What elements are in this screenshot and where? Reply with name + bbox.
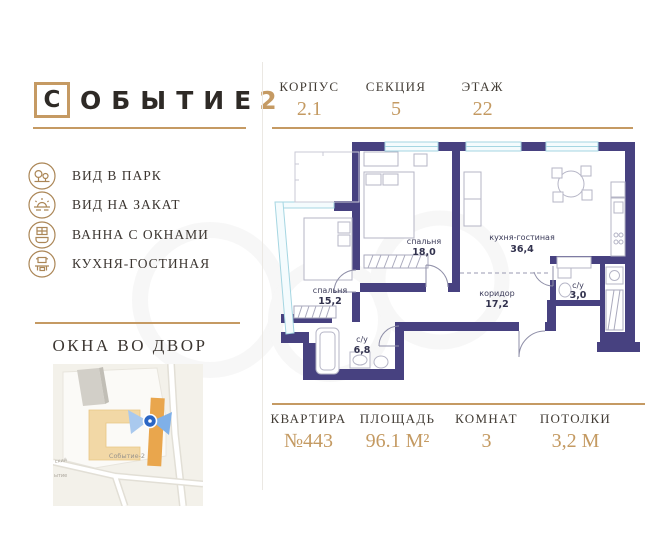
map-building-label: Событие-2 bbox=[109, 452, 145, 460]
room-name: спальня bbox=[407, 237, 442, 246]
stat-korpus: КОРПУС 2.1 bbox=[266, 79, 353, 121]
feature-label: ВИД В ПАРК bbox=[72, 168, 162, 184]
feature-sunset-view: ВИД НА ЗАКАТ bbox=[28, 191, 210, 221]
stat-value: №443 bbox=[264, 430, 353, 453]
stat-value: 2.1 bbox=[266, 98, 353, 121]
park-view-icon bbox=[28, 162, 56, 190]
room-area: 15,2 bbox=[318, 296, 341, 307]
courtyard-title: ОКНА ВО ДВОР bbox=[30, 336, 230, 356]
room-area: 18,0 bbox=[412, 247, 436, 258]
stat-label: КОРПУС bbox=[266, 79, 353, 95]
room-name: коридор bbox=[479, 289, 515, 298]
stat-label: ПОТОЛКИ bbox=[531, 411, 620, 427]
stat-value: 3,2 М bbox=[531, 430, 620, 453]
complex-logo: С ОБЫТИЕ 2 bbox=[34, 82, 277, 118]
column-divider bbox=[262, 62, 263, 490]
stat-label: ПЛОЩАДЬ bbox=[353, 411, 442, 427]
header-stats: КОРПУС 2.1 СЕКЦИЯ 5 ЭТАЖ 22 bbox=[266, 79, 526, 121]
stat-kvartira: КВАРТИРА №443 bbox=[264, 411, 353, 453]
map-street-label: ытие bbox=[54, 473, 67, 479]
feature-label: КУХНЯ-ГОСТИНАЯ bbox=[72, 256, 210, 272]
room-area: 36,4 bbox=[510, 244, 534, 255]
stat-value: 22 bbox=[439, 98, 526, 121]
feature-list: ВИД В ПАРК ВИД НА ЗАКАТ ВАННА С ОКНАМИ bbox=[28, 161, 210, 279]
room-name: спальня bbox=[313, 286, 348, 295]
sunset-view-icon bbox=[28, 191, 56, 219]
room-area: 6,8 bbox=[354, 345, 371, 356]
summary-stats: КВАРТИРА №443 ПЛОЩАДЬ 96.1 М² КОМНАТ 3 П… bbox=[264, 411, 620, 453]
stat-label: КОМНАТ bbox=[442, 411, 531, 427]
divider-under-header bbox=[272, 127, 633, 129]
divider-under-logo bbox=[33, 127, 246, 129]
stat-label: СЕКЦИЯ bbox=[353, 79, 440, 95]
floor-plan: спальня 18,0 кухня-гостиная 36,4 спальня… bbox=[268, 140, 640, 396]
feature-park-view: ВИД В ПАРК bbox=[28, 161, 210, 191]
room-name: кухня-гостиная bbox=[489, 233, 555, 242]
room-area: 17,2 bbox=[485, 299, 508, 310]
feature-label: ВАННА С ОКНАМИ bbox=[72, 227, 209, 243]
bath-windows-icon bbox=[28, 221, 56, 249]
logo-boxed-letter: С bbox=[34, 82, 70, 118]
feature-kitchen-living: КУХНЯ-ГОСТИНАЯ bbox=[28, 250, 210, 280]
stat-sekciya: СЕКЦИЯ 5 bbox=[353, 79, 440, 121]
stat-ploshchad: ПЛОЩАДЬ 96.1 М² bbox=[353, 411, 442, 453]
terrace-outline bbox=[295, 152, 359, 202]
room-area: 3,0 bbox=[570, 290, 587, 301]
divider-courtyard bbox=[35, 322, 240, 324]
stat-potolki: ПОТОЛКИ 3,2 М bbox=[531, 411, 620, 453]
stat-value: 5 bbox=[353, 98, 440, 121]
feature-bath-windows: ВАННА С ОКНАМИ bbox=[28, 220, 210, 250]
stat-label: КВАРТИРА bbox=[264, 411, 353, 427]
kitchen-living-icon bbox=[28, 250, 56, 278]
divider-above-summary bbox=[272, 403, 645, 405]
feature-label: ВИД НА ЗАКАТ bbox=[72, 197, 181, 213]
room-name: с/у bbox=[356, 335, 368, 344]
stat-komnat: КОМНАТ 3 bbox=[442, 411, 531, 453]
apartment-card: С ОБЫТИЕ 2 ВИД В ПАРК ВИД НА ЗАКАТ bbox=[0, 0, 648, 540]
stat-value: 96.1 М² bbox=[353, 430, 442, 453]
stat-etazh: ЭТАЖ 22 bbox=[439, 79, 526, 121]
room-name: с/у bbox=[572, 281, 584, 290]
logo-text: ОБЫТИЕ bbox=[80, 86, 261, 115]
stat-label: ЭТАЖ bbox=[439, 79, 526, 95]
location-map: Событие-2 ский ытие bbox=[53, 364, 203, 506]
stat-value: 3 bbox=[442, 430, 531, 453]
